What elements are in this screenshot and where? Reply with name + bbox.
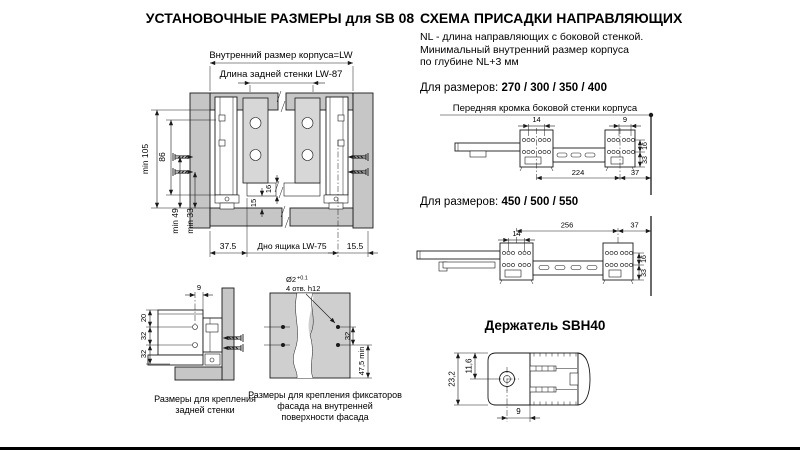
- backwall-caption-1: Размеры для крепления: [154, 394, 256, 404]
- dim-256: 256: [561, 221, 574, 230]
- holder-body: [488, 353, 590, 405]
- facade-geometry: [264, 293, 350, 378]
- hole-diameter: Ø2: [286, 275, 296, 284]
- dim-33-2: 33: [641, 269, 648, 277]
- slide-rail-2: [417, 243, 633, 284]
- dim-9-back: 9: [197, 283, 201, 292]
- dim-bottom-label: Дно ящика LW-75: [257, 241, 326, 251]
- dim-47-5: 47,5 min: [357, 347, 366, 376]
- sizes2-values: 450 / 500 / 550: [501, 196, 578, 208]
- sizes1-label: Для размеров:: [420, 82, 498, 94]
- dim-20: 20: [139, 314, 148, 322]
- drawer-bottom-board: [247, 181, 320, 198]
- sizes2-label: Для размеров:: [420, 196, 498, 208]
- backwall-geometry: [148, 288, 243, 380]
- dim-23-2: 23,2: [448, 371, 457, 387]
- facade-caption-1: Размеры для крепления фиксаторов: [248, 390, 402, 400]
- dim-16-1: 16: [642, 142, 649, 150]
- dim-32a: 32: [139, 332, 148, 340]
- drilling-drawing-1: Передняя кромка боковой стенки корпуса: [415, 100, 800, 195]
- dim-15: 15: [249, 199, 258, 207]
- scheme-note-3: по глубине NL+3 мм: [420, 56, 643, 69]
- sizes-line-1: Для размеров: 270 / 300 / 350 / 400: [420, 82, 607, 94]
- drilling-drawing-2: 14 256 37 16 33: [415, 210, 800, 305]
- dim-backwall-length-label: Длина задней стенки LW-87: [220, 69, 343, 80]
- dim-224: 224: [572, 168, 585, 177]
- dim-15-5: 15.5: [347, 241, 364, 251]
- dim-9-1: 9: [623, 115, 627, 124]
- facade-caption-2: фасада на внутренней: [277, 401, 373, 411]
- dim-32-facade: 32: [343, 332, 352, 340]
- dim-86: 86: [157, 152, 167, 162]
- hole-count: 4 отв. h12: [286, 284, 320, 293]
- dim-37-5: 37.5: [220, 241, 237, 251]
- scheme-notes: NL - длина направляющих с боковой стенко…: [420, 31, 643, 69]
- sizes1-values: 270 / 300 / 350 / 400: [501, 82, 607, 94]
- facade-caption-3: поверхности фасада: [281, 412, 368, 422]
- hole-tolerance: +0.1: [297, 276, 308, 282]
- dim-37-1: 37: [631, 168, 639, 177]
- main-install-drawing: Внутренний размер корпуса=LW Длина задне…: [140, 45, 410, 270]
- install-title: УСТАНОВОЧНЫЕ РАЗМЕРЫ для SB 08: [140, 10, 420, 26]
- catalog-page: УСТАНОВОЧНЫЕ РАЗМЕРЫ для SB 08 СХЕМА ПРИ…: [0, 0, 800, 450]
- holder-title: Держатель SBH40: [445, 318, 645, 333]
- dim-37-2: 37: [630, 221, 638, 230]
- dim-16: 16: [264, 185, 273, 193]
- dim-33-1: 33: [642, 156, 649, 164]
- dim-min49: min 49: [170, 208, 180, 234]
- dim-9-holder: 9: [516, 407, 521, 416]
- dim-11-6: 11,6: [465, 358, 474, 374]
- scheme-note-1: NL - длина направляющих с боковой стенко…: [420, 31, 643, 44]
- holder-drawing: 23,2 11,6 9: [430, 340, 700, 446]
- scheme-title: СХЕМА ПРИСАДКИ НАПРАВЛЯЮЩИХ: [420, 10, 682, 26]
- dim-14-1: 14: [532, 115, 540, 124]
- dim-min33: min 33: [185, 208, 195, 234]
- facade-detail-drawing: Ø2 +0.1 4 отв. h12 32 47,5 min Размеры д…: [250, 270, 410, 430]
- front-edge-label: Передняя кромка боковой стенки корпуса: [453, 103, 638, 114]
- dim-inner-width-label: Внутренний размер корпуса=LW: [209, 50, 352, 61]
- dim-32b: 32: [139, 350, 148, 358]
- dim-min105: min 105: [140, 144, 150, 175]
- scheme-note-2: Минимальный внутренний размер корпуса: [420, 44, 643, 57]
- backwall-caption-2: задней стенки: [175, 405, 234, 415]
- slide-rail-1: [455, 130, 635, 171]
- sizes-line-2: Для размеров: 450 / 500 / 550: [420, 196, 578, 208]
- dim-16-2: 16: [641, 255, 648, 263]
